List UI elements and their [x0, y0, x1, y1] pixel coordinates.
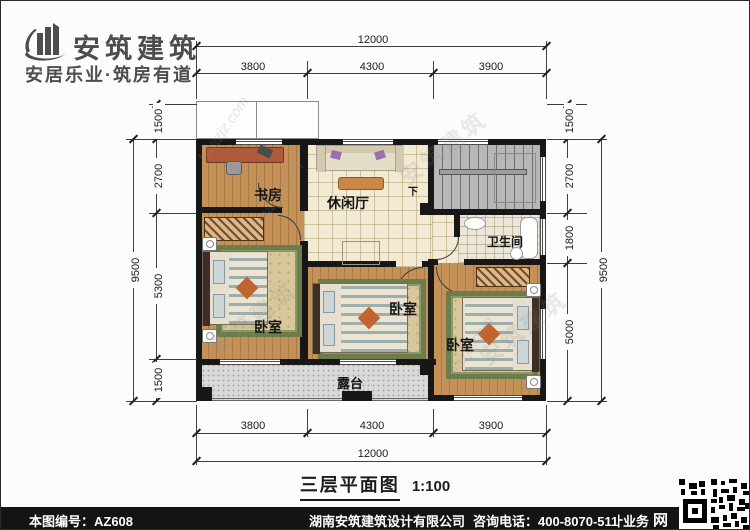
footer-phone: 咨询电话：400-8070-511: [467, 511, 618, 530]
nightstand: [202, 237, 217, 251]
room-label-lounge: 休闲厅: [304, 193, 392, 213]
footer-drawing-no: 本图编号：AZ608: [29, 511, 133, 530]
room-label-terrace: 露台: [318, 373, 382, 392]
room-label-stairs-down: 下: [404, 183, 422, 198]
room-label-study: 书房: [238, 185, 298, 205]
drawing-title: 三层平面图: [300, 471, 400, 501]
dim-right-seg-2: 2700: [564, 158, 576, 194]
sofa-pillow-left: [330, 150, 342, 160]
terrace-column-left: [196, 387, 212, 401]
dim-top-seg-1: 3800: [231, 61, 275, 73]
dim-top-overall: 12000: [347, 34, 399, 46]
window-stair-top: [438, 139, 488, 145]
terrace-column-right: [420, 363, 433, 375]
window-bath-right: [540, 219, 546, 255]
window-bedroom-left-terrace: [220, 359, 280, 365]
room-label-bedroom-right: 卧室: [432, 335, 488, 355]
window-bedroom-right: [540, 309, 546, 359]
room-label-bathroom: 卫生间: [474, 233, 536, 250]
study-chair: [226, 161, 242, 175]
dim-left-overall: 9500: [130, 252, 142, 288]
nightstand: [526, 375, 541, 389]
wall-bedroom-middle-top-b: [422, 261, 430, 267]
footer-bar: 本图编号：AZ608 湖南安筑建筑设计有限公司 专业承接全国别墅设计业务 咨询电…: [1, 507, 750, 530]
footer-company: 湖南安筑建筑设计有限公司: [309, 511, 465, 530]
wall-bedroom-right-top-b: [464, 259, 546, 265]
nightstand: [526, 283, 541, 297]
terrace-column-middle: [342, 391, 372, 401]
qr-code: [679, 479, 750, 530]
window-stair-right: [540, 157, 546, 201]
lounge-floor-marker: [342, 241, 380, 265]
room-label-bedroom-middle: 卧室: [378, 299, 428, 319]
wall-mid-right-divider: [428, 265, 434, 401]
dim-left-seg-3: 5300: [153, 268, 165, 304]
dim-bottom-seg-1: 3800: [231, 420, 275, 432]
stair-landing-outline: [494, 153, 536, 203]
brand-logo-icon: [21, 21, 71, 63]
drawing-caption: 三层平面图 1:100: [1, 471, 749, 501]
wall-bath-left: [454, 215, 460, 237]
dim-bottom-seg-3: 3900: [469, 420, 513, 432]
drawing-sheet: 安筑建筑 安居乐业·筑房有道: [0, 0, 750, 530]
wall-stair-bath: [428, 209, 546, 215]
dim-left-seg-2: 2700: [153, 158, 165, 194]
wall-study-bedroom: [196, 207, 282, 213]
lounge-table: [338, 177, 384, 190]
roof-divider: [256, 101, 257, 139]
floor-plan: 书房 休闲厅 下 卫生间 卧室 卧室 卧室 露台: [196, 101, 546, 401]
dim-right-seg-4: 5000: [564, 314, 576, 350]
dim-bottom-overall: 12000: [347, 448, 399, 460]
bathroom-sink: [464, 217, 486, 230]
lounge-sofa: [316, 145, 402, 171]
room-label-bedroom-left: 卧室: [240, 317, 296, 337]
dim-left-seg-1: 1500: [153, 103, 165, 139]
drawing-scale: 1:100: [412, 478, 450, 495]
wardrobe-bedroom-right: [476, 267, 530, 287]
roof-outline: [196, 101, 319, 139]
dim-right-seg-3: 1800: [564, 220, 576, 256]
bed-right: [462, 297, 540, 371]
sofa-pillow-right: [374, 150, 386, 161]
window-bedroom-right-bottom: [454, 395, 522, 401]
window-bedroom-middle-terrace: [340, 359, 396, 365]
window-study-top: [236, 139, 282, 145]
dim-right-overall: 9500: [598, 252, 610, 288]
brand-tagline: 安居乐业·筑房有道: [25, 61, 193, 87]
bed-left: [202, 251, 268, 325]
dim-top-seg-3: 3900: [469, 61, 513, 73]
dim-bottom-seg-2: 4300: [350, 420, 394, 432]
dim-top-seg-2: 4300: [350, 61, 394, 73]
nightstand: [202, 329, 217, 343]
web-icon: 网: [653, 509, 668, 530]
terrace-floor: [198, 363, 433, 401]
dim-right-seg-1: 1500: [564, 103, 576, 139]
dim-left-seg-4: 1500: [153, 362, 165, 398]
